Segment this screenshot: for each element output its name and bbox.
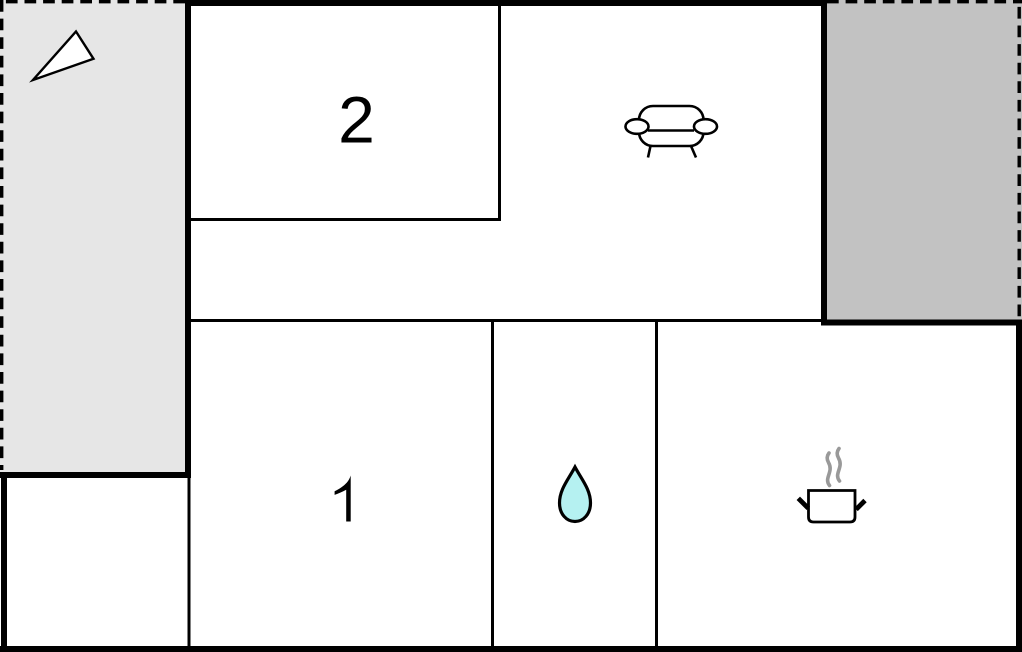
svg-text:2: 2	[338, 83, 375, 157]
